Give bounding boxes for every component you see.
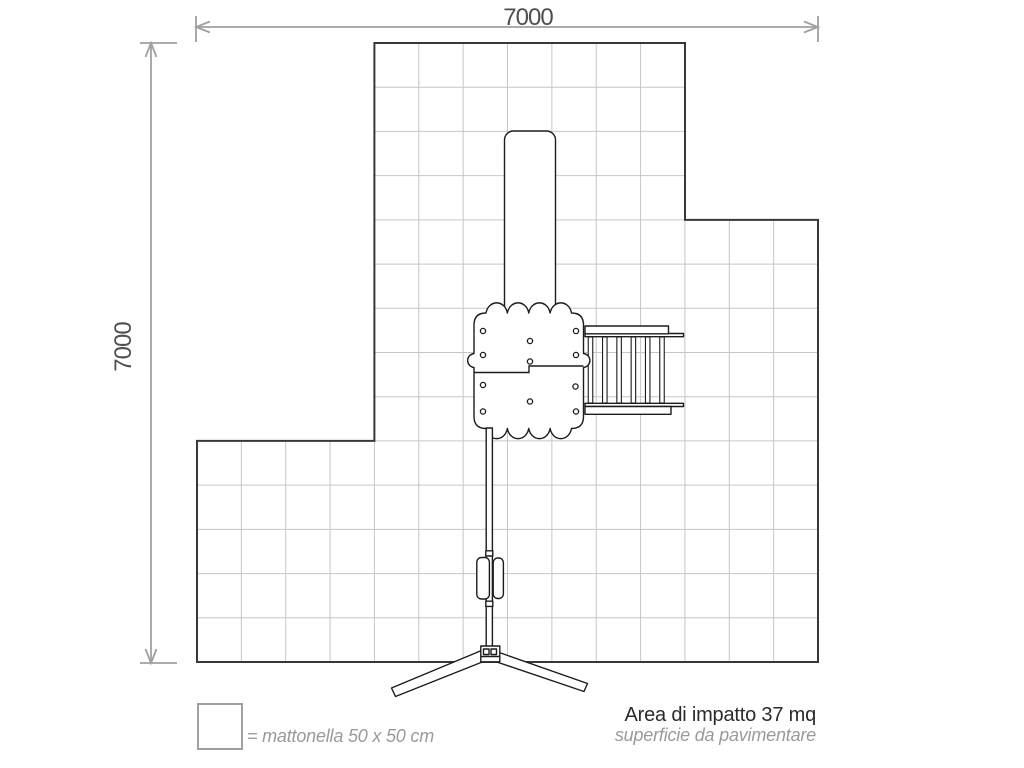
top-dimension-label: 7000: [503, 4, 553, 31]
platform-bolt: [480, 382, 485, 387]
ladder-top-cap: [585, 326, 669, 334]
base-plate-bolt-right: [491, 649, 497, 655]
platform-bolt: [573, 384, 578, 389]
support-pole: [486, 428, 492, 654]
left-dimension-label: 7000: [110, 322, 137, 372]
clamp-left-pad: [477, 558, 490, 600]
legend: = mattonella 50 x 50 cm: [198, 704, 434, 749]
platform-bolt: [573, 409, 578, 414]
clamp-bottom-bolt: [486, 601, 493, 606]
platform-bolt: [480, 328, 485, 333]
left-dimension: 7000: [110, 43, 177, 663]
slide-chute: [505, 131, 556, 317]
impact-area-title: Area di impatto 37 mq: [625, 704, 816, 726]
platform-bolt: [527, 338, 532, 343]
top-dimension: 7000: [196, 4, 818, 42]
platform-bolt: [480, 352, 485, 357]
platform-bolt: [527, 399, 532, 404]
platform-bolt: [573, 328, 578, 333]
platform-bolt: [480, 409, 485, 414]
legend-label: = mattonella 50 x 50 cm: [247, 726, 434, 746]
ladder-rung: [588, 337, 593, 403]
platform-bolt: [573, 352, 578, 357]
ladder-bottom-cap: [585, 407, 671, 415]
platform-bolt: [527, 359, 532, 364]
ladder-rung: [603, 337, 608, 403]
ladder-rung: [660, 337, 665, 403]
clamp-top-bolt: [486, 551, 493, 556]
impact-area-plan-page: 7000 7000: [0, 0, 1024, 768]
impact-area-subtitle: superficie da pavimentare: [615, 725, 816, 745]
ladder-rung: [631, 337, 636, 403]
impact-area-plan-drawing: 7000 7000: [0, 0, 1024, 768]
legend-tile-swatch: [198, 704, 242, 749]
ladder-rung: [617, 337, 622, 403]
impact-area-caption: Area di impatto 37 mq superficie da pavi…: [615, 704, 816, 745]
base-plate-bolt-left: [484, 649, 490, 655]
clamp-right-pad: [493, 558, 503, 599]
ladder-rung: [645, 337, 650, 403]
